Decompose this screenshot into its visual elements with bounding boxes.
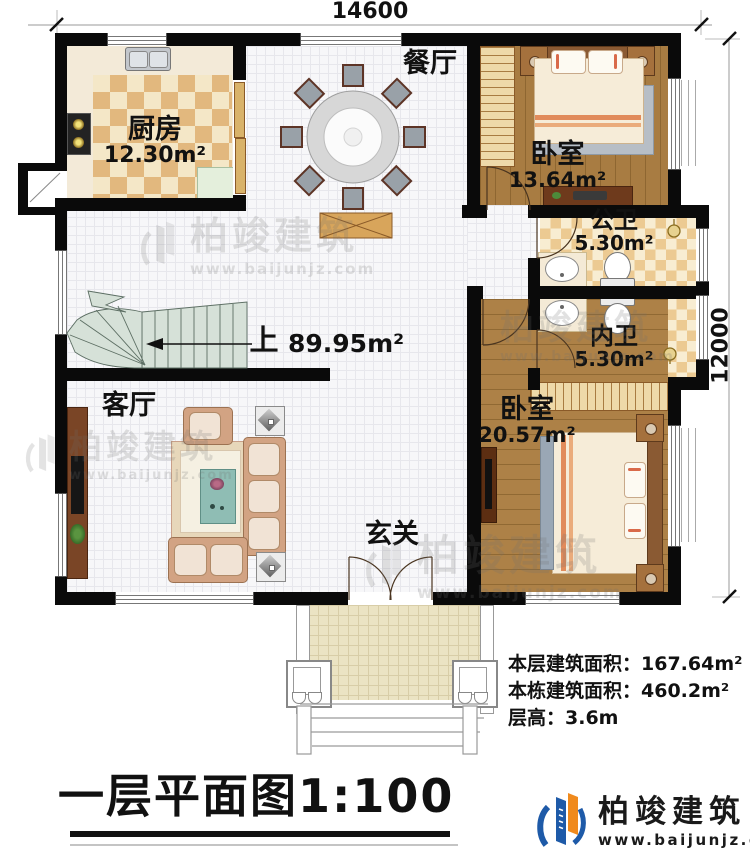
- title-underline: [70, 831, 450, 837]
- stairs-up-label: 上: [246, 325, 282, 355]
- entrance-double-door: [349, 557, 432, 600]
- shower-head-icon: [664, 219, 680, 364]
- info-floor-area: 本层建筑面积：167.64m²: [508, 651, 742, 678]
- dimension-right: 12000: [709, 301, 732, 391]
- room-name: 卧室: [500, 141, 615, 169]
- dining-table-set: [281, 65, 425, 209]
- dining-label: 餐厅: [388, 50, 472, 78]
- dimension-top: 14600: [327, 0, 413, 23]
- public-bath-label: 公卫 5.30m²: [566, 208, 662, 254]
- title-underline-thin: [70, 844, 458, 846]
- foyer-label: 玄关: [360, 521, 424, 549]
- brand-logo: 柏竣建筑 www.baijunjz.com: [536, 786, 750, 849]
- open-area-label: 89.95m²: [288, 331, 392, 357]
- bedroom1-label: 卧室 13.64m²: [500, 141, 615, 191]
- room-name: 厨房: [95, 116, 215, 144]
- room-name: 客厅: [93, 392, 165, 420]
- room-area: 5.30m²: [566, 349, 662, 370]
- room-name: 玄关: [360, 521, 424, 549]
- brand-url: www.baijunjz.com: [598, 831, 750, 849]
- room-name: 内卫: [566, 324, 662, 349]
- brand-name: 柏竣建筑: [598, 786, 750, 831]
- page-title: 一层平面图1:100: [58, 760, 454, 826]
- bedroom2-label: 卧室 20.57m²: [468, 396, 586, 446]
- stairs: [67, 291, 247, 368]
- room-area: 13.64m²: [500, 169, 615, 191]
- niche-door-flap: [30, 173, 60, 202]
- room-area: 5.30m²: [566, 233, 662, 254]
- porch-steps: [297, 704, 488, 754]
- room-name: 公卫: [566, 208, 662, 233]
- room-name: 卧室: [468, 396, 586, 424]
- bedroom2-door: [483, 299, 529, 345]
- room-area: 12.30m²: [95, 144, 215, 167]
- living-label: 客厅: [93, 392, 165, 420]
- room-area: 20.57m²: [468, 424, 586, 446]
- kitchen-label: 厨房 12.30m²: [95, 116, 215, 167]
- info-building-area: 本栋建筑面积：460.2m²: [508, 678, 742, 705]
- private-bath-label: 内卫 5.30m²: [566, 324, 662, 370]
- sideboard: [320, 213, 392, 238]
- info-block: 本层建筑面积：167.64m² 本栋建筑面积：460.2m² 层高：3.6m: [508, 651, 742, 732]
- room-name: 餐厅: [388, 50, 472, 78]
- floor-plan-canvas: 厨房 12.30m² 餐厅 卧室 13.64m² 公卫 5.30m² 内卫 5.…: [0, 0, 750, 855]
- brand-logo-icon: [536, 787, 590, 849]
- info-floor-height: 层高：3.6m: [508, 705, 742, 732]
